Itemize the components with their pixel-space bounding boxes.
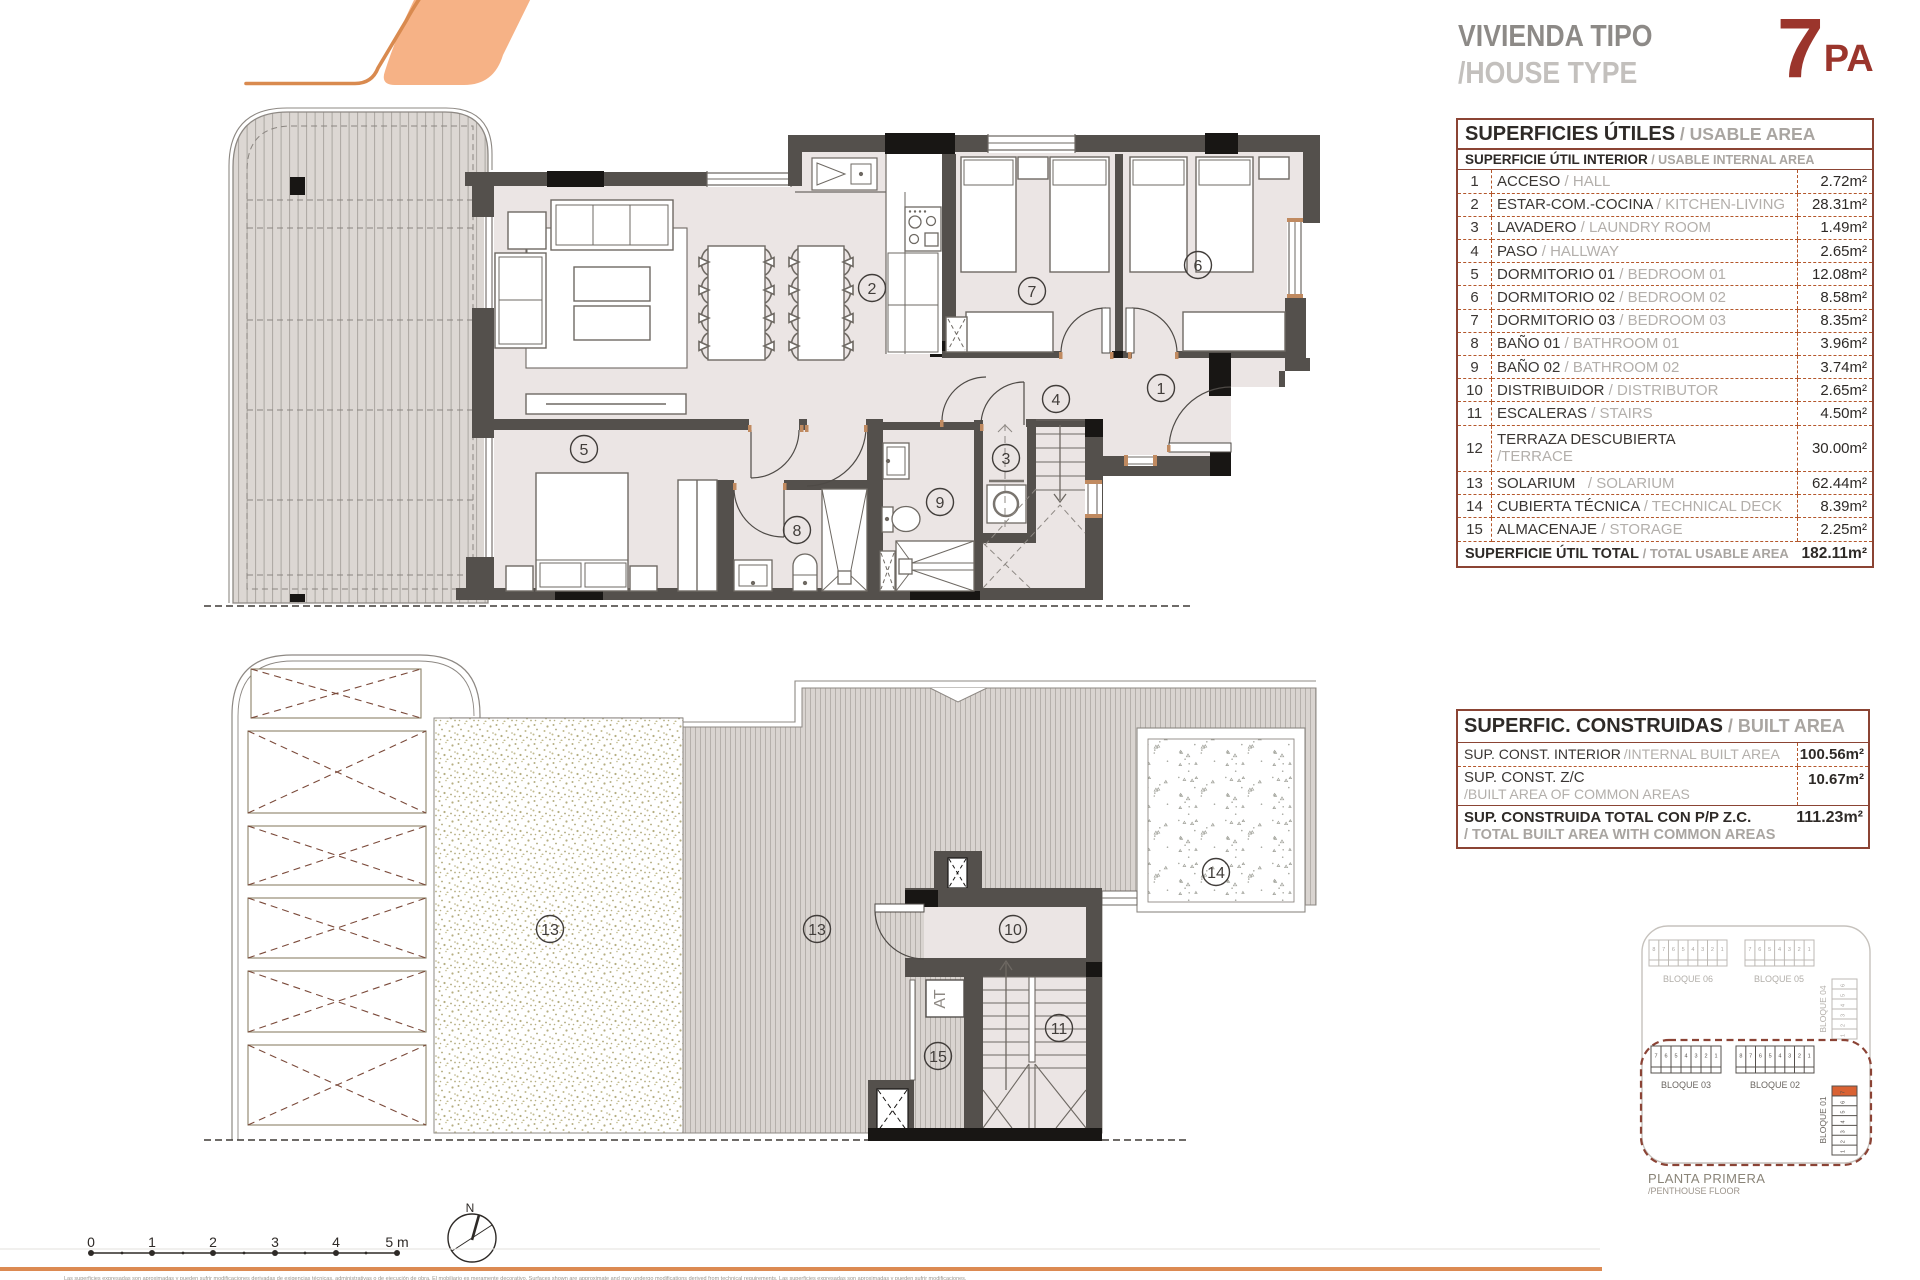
svg-text:2: 2 (1798, 947, 1801, 953)
svg-text:13: 13 (541, 922, 559, 939)
svg-text:3: 3 (1694, 1054, 1697, 1060)
svg-text:8: 8 (793, 523, 802, 540)
svg-text:1: 1 (1841, 1034, 1847, 1037)
svg-text:6: 6 (1841, 1101, 1847, 1104)
svg-text:2: 2 (1841, 1024, 1847, 1027)
svg-text:7: 7 (1028, 284, 1037, 301)
svg-text:7: 7 (1841, 1091, 1847, 1094)
svg-text:5: 5 (1841, 994, 1847, 997)
svg-text:5: 5 (1769, 1054, 1772, 1060)
svg-text:2: 2 (868, 281, 877, 298)
svg-text:5: 5 (580, 442, 589, 459)
svg-text:6: 6 (1758, 947, 1761, 953)
svg-text:4: 4 (332, 1234, 340, 1250)
svg-text:4: 4 (1841, 1120, 1847, 1123)
svg-text:2: 2 (1704, 1054, 1707, 1060)
svg-text:BLOQUE 04: BLOQUE 04 (1818, 985, 1828, 1033)
svg-text:5: 5 (1682, 947, 1685, 953)
svg-text:AT: AT (932, 989, 949, 1008)
svg-text:9: 9 (936, 495, 945, 512)
svg-text:BLOQUE 03: BLOQUE 03 (1661, 1080, 1711, 1090)
svg-text:7: 7 (1654, 1054, 1657, 1060)
svg-text:N: N (466, 1201, 475, 1215)
svg-text:1: 1 (1157, 381, 1166, 398)
svg-text:3: 3 (1788, 947, 1791, 953)
svg-text:4: 4 (1778, 1054, 1781, 1060)
svg-text:BLOQUE 05: BLOQUE 05 (1754, 974, 1804, 984)
svg-text:5: 5 (1768, 947, 1771, 953)
svg-text:4: 4 (1841, 1004, 1847, 1007)
svg-text:5: 5 (1674, 1054, 1677, 1060)
svg-text:6: 6 (1194, 258, 1203, 275)
svg-text:4: 4 (1052, 392, 1061, 409)
svg-text:6: 6 (1664, 1054, 1667, 1060)
svg-text:10: 10 (1004, 922, 1022, 939)
svg-text:4: 4 (1691, 947, 1694, 953)
svg-text:3: 3 (1841, 1014, 1847, 1017)
svg-text:2: 2 (1711, 947, 1714, 953)
svg-text:11: 11 (1051, 1021, 1068, 1038)
svg-text:4: 4 (1684, 1054, 1687, 1060)
svg-text:3: 3 (271, 1234, 279, 1250)
svg-text:2: 2 (209, 1234, 217, 1250)
svg-text:3: 3 (1002, 451, 1011, 468)
svg-text:5 m: 5 m (385, 1234, 408, 1250)
svg-text:1: 1 (1721, 947, 1724, 953)
svg-text:6: 6 (1672, 947, 1675, 953)
svg-text:BLOQUE 02: BLOQUE 02 (1750, 1080, 1800, 1090)
svg-text:1: 1 (1808, 947, 1811, 953)
svg-text:5: 5 (1841, 1111, 1847, 1114)
svg-text:8: 8 (1652, 947, 1655, 953)
svg-text:0: 0 (87, 1234, 95, 1250)
svg-text:7: 7 (1662, 947, 1665, 953)
svg-text:1: 1 (1714, 1054, 1717, 1060)
svg-text:4: 4 (1778, 947, 1781, 953)
svg-text:2: 2 (1798, 1054, 1801, 1060)
svg-text:2: 2 (1841, 1140, 1847, 1143)
svg-text:1: 1 (1808, 1054, 1811, 1060)
svg-text:6: 6 (1759, 1054, 1762, 1060)
svg-text:8: 8 (1739, 1054, 1742, 1060)
svg-text:7: 7 (1748, 947, 1751, 953)
svg-text:BLOQUE 06: BLOQUE 06 (1663, 974, 1713, 984)
svg-text:3: 3 (1841, 1130, 1847, 1133)
svg-text:1: 1 (1841, 1150, 1847, 1153)
svg-text:3: 3 (1788, 1054, 1791, 1060)
svg-text:1: 1 (148, 1234, 156, 1250)
svg-text:13: 13 (808, 922, 826, 939)
svg-text:7: 7 (1749, 1054, 1752, 1060)
svg-text:3: 3 (1701, 947, 1704, 953)
svg-text:6: 6 (1841, 984, 1847, 987)
svg-text:BLOQUE 01: BLOQUE 01 (1818, 1096, 1828, 1144)
svg-text:14: 14 (1207, 865, 1225, 882)
svg-text:15: 15 (929, 1049, 947, 1066)
